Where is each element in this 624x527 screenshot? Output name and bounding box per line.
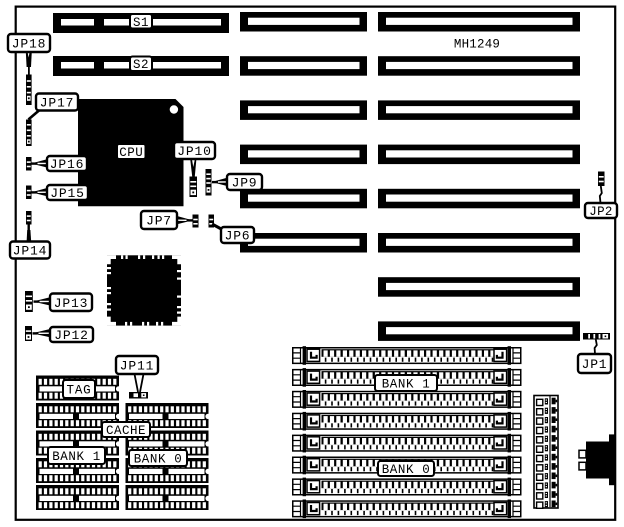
svg-text:JP9: JP9: [232, 176, 258, 191]
svg-text:JP15: JP15: [50, 186, 84, 201]
svg-text:JP14: JP14: [13, 244, 47, 259]
svg-text:MH1249: MH1249: [454, 38, 500, 52]
svg-text:JP6: JP6: [225, 229, 251, 244]
svg-text:JP7: JP7: [146, 214, 172, 229]
svg-text:JP17: JP17: [40, 96, 74, 111]
svg-text:BANK 0: BANK 0: [134, 453, 183, 467]
svg-text:S2: S2: [133, 58, 149, 72]
svg-text:CACHE: CACHE: [106, 424, 146, 438]
svg-text:BANK 1: BANK 1: [382, 378, 431, 392]
svg-text:JP11: JP11: [120, 359, 154, 374]
svg-text:JP2: JP2: [589, 205, 612, 219]
svg-text:JP16: JP16: [50, 157, 84, 172]
svg-text:TAG: TAG: [67, 384, 92, 398]
svg-text:JP13: JP13: [54, 296, 88, 311]
svg-text:JP18: JP18: [12, 37, 46, 52]
svg-text:S1: S1: [133, 16, 149, 30]
svg-text:BANK 0: BANK 0: [382, 463, 431, 477]
svg-text:JP12: JP12: [54, 328, 88, 343]
svg-text:JP1: JP1: [582, 357, 608, 372]
svg-text:BANK 1: BANK 1: [52, 450, 101, 464]
svg-text:JP10: JP10: [177, 144, 211, 159]
svg-text:CPU: CPU: [119, 146, 143, 160]
